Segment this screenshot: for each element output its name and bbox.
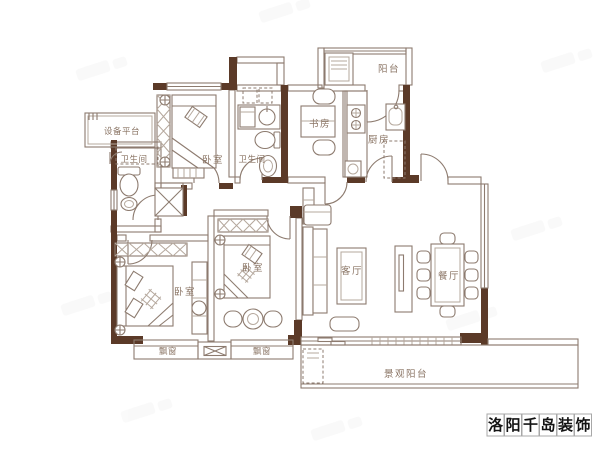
brand-watermark-char: 装 — [557, 416, 574, 434]
brand-watermark-char: 饰 — [575, 416, 590, 434]
brand-watermark-char: 洛 — [488, 416, 504, 434]
bedside-lamp-icon — [160, 157, 170, 167]
bedside-lamp-icon — [215, 289, 225, 299]
balcony-top-fixtures — [325, 53, 353, 85]
floor-plan-svg: 阳台 书房 厨房 设备平台 卫生间 卧室 卫生间 卧室 卧室 客厅 餐厅 飘窗 … — [0, 0, 600, 450]
room-label-bedroom-bottom-middle: 卧室 — [242, 262, 264, 274]
room-label-bay-window-right: 飘窗 — [253, 346, 271, 357]
room-label-bedroom-top: 卧室 — [202, 154, 224, 166]
entry-door-arc — [421, 154, 448, 181]
bedside-lamp-icon — [115, 257, 125, 267]
brand-watermark-char: 岛 — [540, 416, 555, 434]
room-label-bathroom-middle: 卫生间 — [238, 154, 265, 165]
room-label-bathroom-left: 卫生间 — [120, 154, 147, 165]
brand-watermark-char: 阳 — [505, 416, 520, 434]
room-label-study: 书房 — [309, 118, 331, 130]
room-label-bedroom-bottom-left: 卧室 — [174, 286, 196, 298]
living-sliding-window — [301, 337, 461, 345]
room-label-landscape-balcony: 景观阳台 — [384, 368, 428, 380]
utility-shaft — [155, 183, 183, 216]
bedside-lamp-icon — [115, 325, 125, 335]
floor-plan-image: 阳台 书房 厨房 设备平台 卫生间 卧室 卫生间 卧室 卧室 客厅 餐厅 飘窗 … — [0, 0, 600, 450]
pier-box — [198, 342, 231, 359]
room-landscape-balcony — [301, 339, 578, 388]
brand-watermark-char: 千 — [523, 416, 538, 434]
bedside-lamp-icon — [160, 95, 170, 105]
bedroom-bottom-middle-furniture — [215, 219, 282, 329]
brand-watermark: 洛 阳 千 岛 装 饰 — [487, 414, 592, 436]
room-label-living-room: 客厅 — [341, 265, 363, 277]
bedside-lamp-icon — [215, 235, 225, 245]
room-label-balcony-top: 阳台 — [378, 63, 400, 75]
room-label-equipment-platform: 设备平台 — [104, 126, 140, 137]
room-label-bay-window-left: 飘窗 — [159, 346, 177, 357]
room-label-dining-room: 餐厅 — [438, 270, 460, 282]
room-label-kitchen: 厨房 — [368, 134, 390, 146]
